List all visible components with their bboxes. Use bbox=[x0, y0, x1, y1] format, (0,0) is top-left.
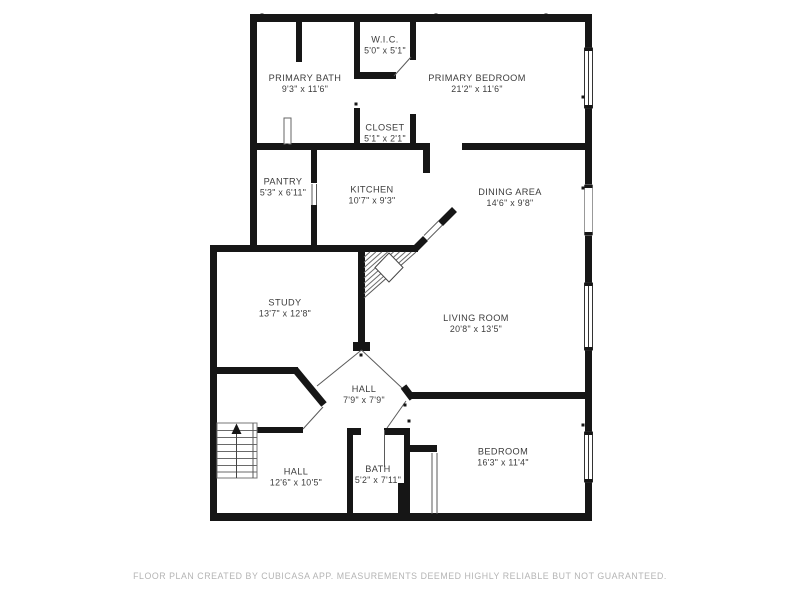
room-name-primary-bedroom: PRIMARY BEDROOM bbox=[428, 73, 526, 83]
room-name-dining-area: DINING AREA bbox=[478, 187, 542, 197]
footer-disclaimer: FLOOR PLAN CREATED BY CUBICASA APP. MEAS… bbox=[0, 571, 800, 581]
room-dims-bath: 5'2" x 7'11" bbox=[355, 475, 401, 485]
interior-walls bbox=[210, 22, 592, 520]
bath-fixture bbox=[284, 118, 291, 144]
window-bedroom bbox=[585, 432, 593, 482]
room-dims-primary-bedroom: 21'2" x 11'6" bbox=[451, 84, 503, 94]
room-dims-pantry: 5'3" x 6'11" bbox=[260, 188, 306, 198]
room-dims-hall-center: 7'9" x 7'9" bbox=[343, 395, 385, 405]
floor-plan-canvas: W.I.C. 5'0" x 5'1" PRIMARY BATH 9'3" x 1… bbox=[0, 0, 800, 600]
room-name-study: STUDY bbox=[268, 298, 301, 308]
room-name-wic: W.I.C. bbox=[371, 35, 398, 45]
window-living-room bbox=[585, 283, 593, 350]
basement-stairs bbox=[217, 423, 257, 478]
room-name-bedroom: BEDROOM bbox=[478, 447, 528, 457]
floor-plan-page: W.I.C. 5'0" x 5'1" PRIMARY BATH 9'3" x 1… bbox=[0, 0, 800, 600]
room-dims-study: 13'7" x 12'8" bbox=[259, 309, 311, 319]
room-name-pantry: PANTRY bbox=[264, 177, 303, 187]
winder-stairs bbox=[364, 252, 416, 298]
room-dims-kitchen: 10'7" x 9'3" bbox=[349, 196, 396, 206]
room-dims-bedroom: 16'3" x 11'4" bbox=[477, 458, 529, 468]
window-dining bbox=[585, 185, 593, 235]
room-name-hall-lower: HALL bbox=[284, 467, 309, 477]
room-dims-dining-area: 14'6" x 9'8" bbox=[487, 198, 534, 208]
room-dims-primary-bath: 9'3" x 11'6" bbox=[282, 84, 328, 94]
room-dims-hall-lower: 12'6" x 10'5" bbox=[270, 478, 322, 488]
room-name-closet: CLOSET bbox=[365, 123, 404, 133]
room-dims-wic: 5'0" x 5'1" bbox=[364, 46, 406, 56]
room-name-hall-center: HALL bbox=[352, 384, 377, 394]
room-dims-living-room: 20'8" x 13'5" bbox=[450, 324, 502, 334]
room-dims-closet: 5'1" x 2'1" bbox=[364, 134, 406, 144]
room-name-kitchen: KITCHEN bbox=[350, 185, 393, 195]
room-name-living-room: LIVING ROOM bbox=[443, 313, 509, 323]
window-primary-bedroom bbox=[585, 48, 593, 108]
room-name-primary-bath: PRIMARY BATH bbox=[269, 73, 342, 83]
room-name-bath: BATH bbox=[365, 464, 390, 474]
